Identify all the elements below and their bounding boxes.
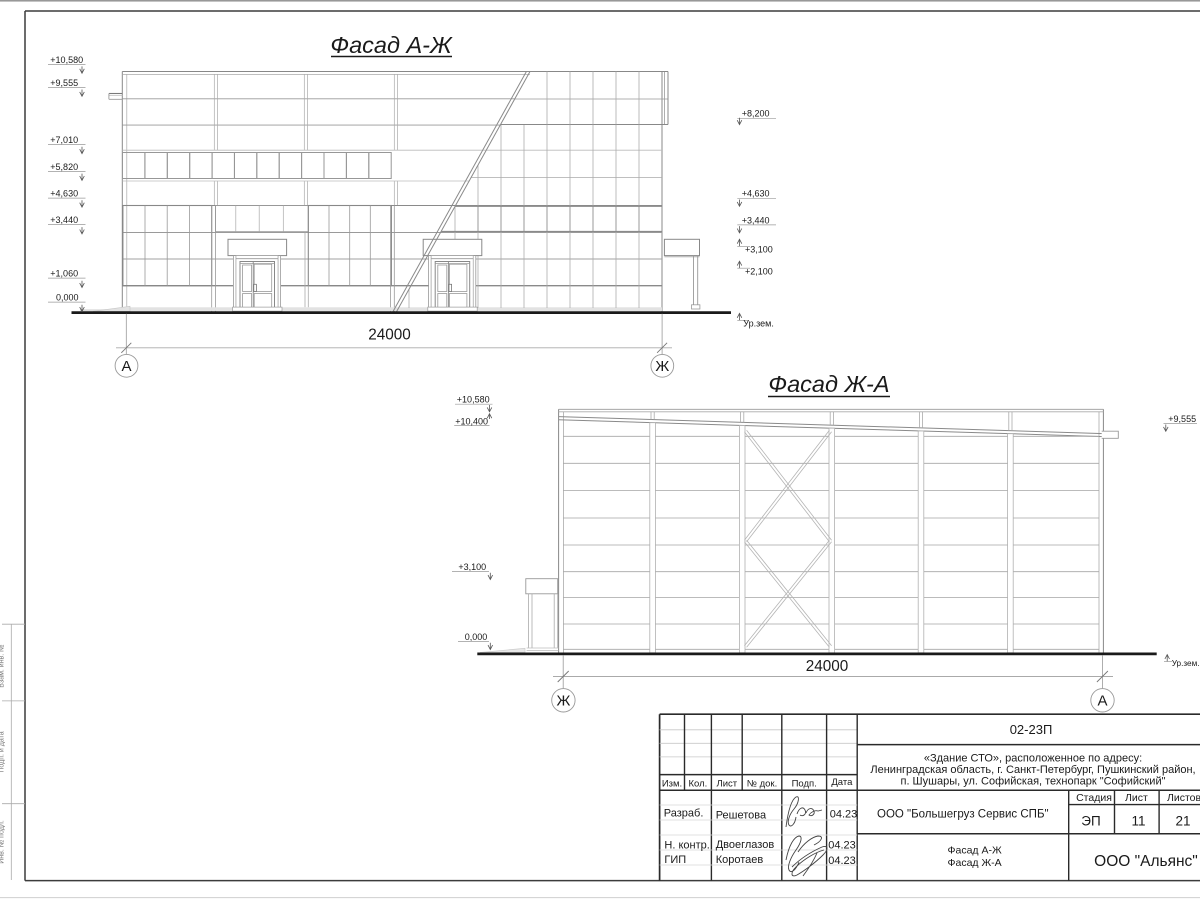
svg-text:Фасад Ж-А: Фасад Ж-А xyxy=(768,371,889,397)
svg-text:Ж: Ж xyxy=(655,358,669,375)
svg-text:02-23П: 02-23П xyxy=(1010,722,1053,737)
svg-text:Лист: Лист xyxy=(1125,792,1148,804)
svg-text:Разраб.: Разраб. xyxy=(664,807,704,819)
svg-text:04.23: 04.23 xyxy=(828,839,856,851)
svg-text:0,000: 0,000 xyxy=(465,632,488,642)
svg-text:+9,555: +9,555 xyxy=(50,78,78,88)
svg-text:+4,630: +4,630 xyxy=(50,189,78,199)
svg-text:Листов: Листов xyxy=(1167,792,1200,804)
svg-text:ЭП: ЭП xyxy=(1081,814,1100,829)
svg-text:Инв. № подл.: Инв. № подл. xyxy=(0,820,6,864)
svg-text:24000: 24000 xyxy=(368,327,411,344)
svg-text:Фасад Ж-А: Фасад Ж-А xyxy=(948,857,1002,869)
svg-text:Кол.: Кол. xyxy=(689,778,708,789)
svg-text:24000: 24000 xyxy=(806,658,849,675)
svg-text:21: 21 xyxy=(1175,814,1190,829)
svg-text:+10,580: +10,580 xyxy=(50,55,83,65)
svg-text:+3,100: +3,100 xyxy=(458,562,486,572)
svg-text:Ленинградская область, г. Санк: Ленинградская область, г. Санкт-Петербур… xyxy=(870,764,1195,776)
svg-text:Фасад А-Ж: Фасад А-Ж xyxy=(330,32,453,58)
svg-text:11: 11 xyxy=(1131,814,1145,829)
svg-text:Стадия: Стадия xyxy=(1076,792,1112,804)
svg-text:Взам. инв. №: Взам. инв. № xyxy=(0,644,6,687)
svg-text:Ж: Ж xyxy=(556,693,570,710)
svg-text:+10,580: +10,580 xyxy=(457,395,490,405)
svg-text:+3,100: +3,100 xyxy=(745,245,773,255)
svg-text:+5,820: +5,820 xyxy=(50,162,78,172)
svg-text:Подп.: Подп. xyxy=(792,778,817,789)
svg-text:0,000: 0,000 xyxy=(56,293,79,303)
svg-text:Ур.зем.: Ур.зем. xyxy=(743,319,774,329)
svg-text:+4,630: +4,630 xyxy=(742,189,770,199)
svg-text:Фасад А-Ж: Фасад А-Ж xyxy=(948,845,1002,857)
svg-text:А: А xyxy=(121,358,131,375)
svg-text:Двоеглазов: Двоеглазов xyxy=(716,839,775,851)
svg-text:ООО "Альянс": ООО "Альянс" xyxy=(1094,853,1198,870)
svg-text:Ур.зем.: Ур.зем. xyxy=(1172,659,1200,668)
svg-text:Дата: Дата xyxy=(831,777,853,788)
svg-text:Подп. и дата: Подп. и дата xyxy=(0,731,6,772)
svg-text:+3,440: +3,440 xyxy=(50,215,78,225)
svg-text:Н. контр.: Н. контр. xyxy=(664,839,709,851)
svg-text:ГИП: ГИП xyxy=(664,854,686,866)
svg-text:+10,400: +10,400 xyxy=(455,416,488,426)
svg-text:+9,555: +9,555 xyxy=(1168,414,1196,424)
svg-text:Решетова: Решетова xyxy=(716,809,767,821)
svg-text:«Здание СТО», расположенное по: «Здание СТО», расположенное по адресу: xyxy=(924,753,1142,765)
svg-text:+2,100: +2,100 xyxy=(745,267,773,277)
svg-text:+7,010: +7,010 xyxy=(50,135,78,145)
svg-text:п. Шушары, ул. Софийская, техн: п. Шушары, ул. Софийская, технопарк "Соф… xyxy=(900,775,1165,787)
svg-text:+1,060: +1,060 xyxy=(50,269,78,279)
svg-text:Лист: Лист xyxy=(716,778,737,789)
svg-text:А: А xyxy=(1097,693,1107,710)
svg-text:+3,440: +3,440 xyxy=(742,215,770,225)
svg-text:04.23: 04.23 xyxy=(830,808,858,820)
svg-text:ООО "Большегруз Сервис СПБ": ООО "Большегруз Сервис СПБ" xyxy=(877,809,1049,821)
svg-text:№ док.: № док. xyxy=(747,778,777,789)
svg-text:Коротаев: Коротаев xyxy=(716,854,764,866)
svg-text:04.23: 04.23 xyxy=(828,855,856,867)
svg-text:+8,200: +8,200 xyxy=(742,109,770,119)
svg-text:Изм.: Изм. xyxy=(662,778,682,789)
